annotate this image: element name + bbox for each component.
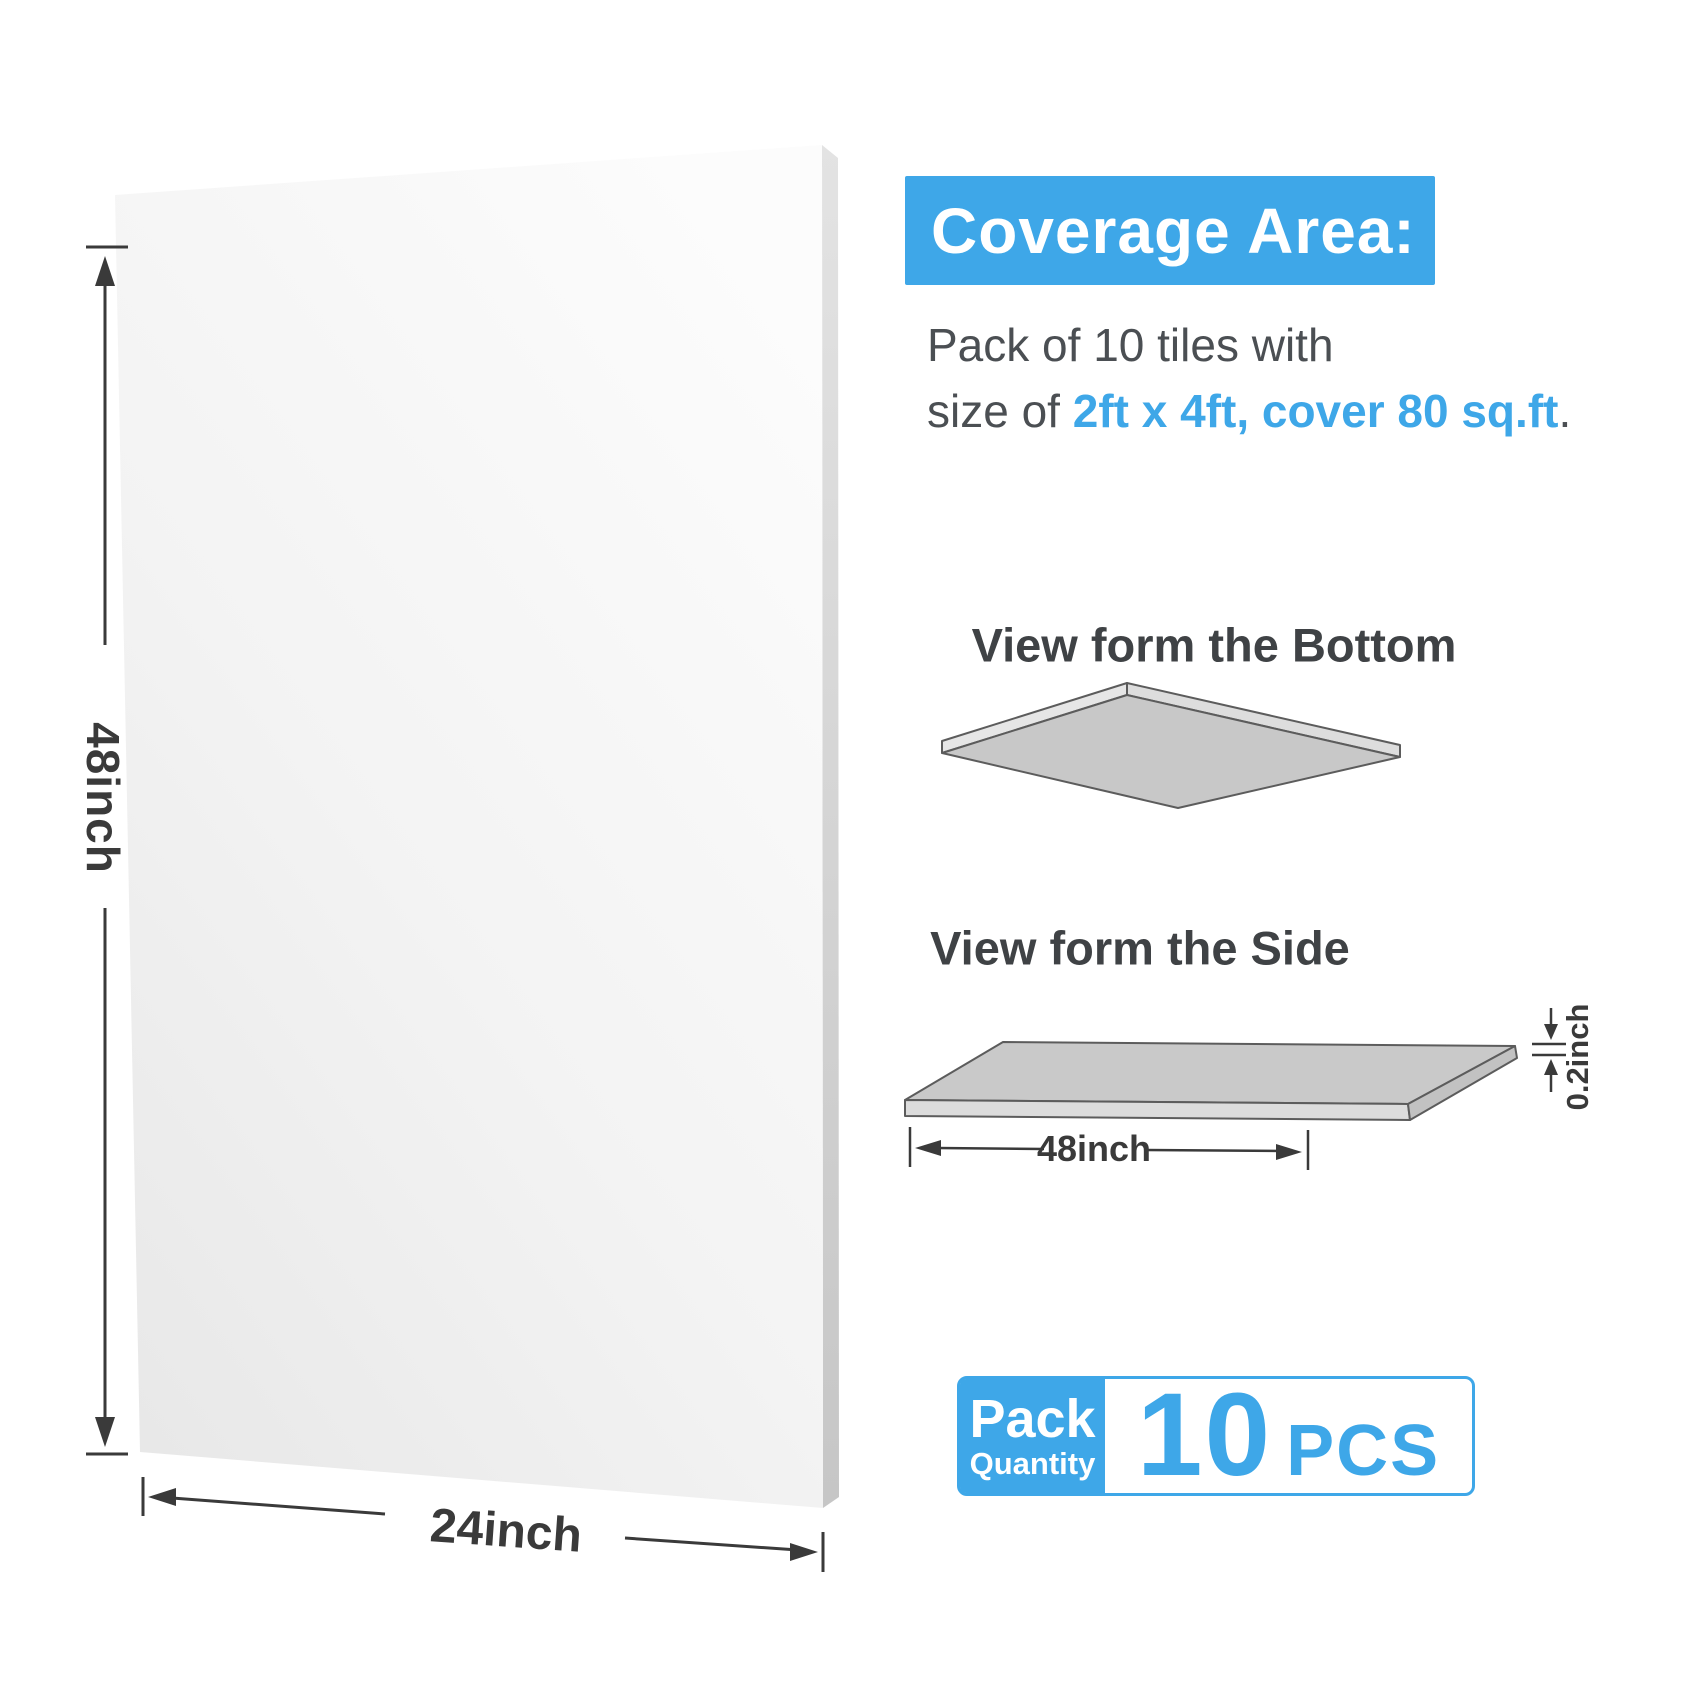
pack-quantity-label: Pack Quantity — [960, 1379, 1105, 1493]
coverage-line2: size of 2ft x 4ft, cover 80 sq.ft. — [927, 378, 1567, 444]
pack-count: 10 — [1137, 1379, 1272, 1491]
pack-unit: PCS — [1286, 1410, 1440, 1492]
side-view-width-label: 48inch — [1037, 1128, 1151, 1170]
tile-side-edge — [822, 145, 839, 1508]
side-view-front-edge — [905, 1100, 1410, 1120]
coverage-line2-prefix: size of — [927, 385, 1073, 437]
ceiling-tile-panel — [115, 145, 839, 1508]
coverage-line1: Pack of 10 tiles with — [927, 312, 1567, 378]
bottom-view-sheet — [942, 683, 1400, 808]
side-view-thickness-label: 0.2inch — [1560, 1004, 1596, 1111]
pack-quantity-badge: Pack Quantity 10 PCS — [957, 1376, 1475, 1496]
panel-height-label: 48inch — [76, 722, 130, 874]
panel-width-label: 24inch — [428, 1498, 584, 1563]
pack-label-top: Pack — [969, 1391, 1095, 1447]
coverage-area-banner: Coverage Area: — [905, 176, 1435, 285]
pack-label-bottom: Quantity — [970, 1447, 1096, 1481]
product-infographic: 48inch 24inch 48inch 0.2inch Coverage Ar… — [0, 0, 1700, 1700]
coverage-description: Pack of 10 tiles with size of 2ft x 4ft,… — [927, 312, 1567, 444]
bottom-view-face — [942, 695, 1400, 808]
pack-quantity-value: 10 PCS — [1105, 1379, 1472, 1493]
bottom-view-title: View form the Bottom — [972, 618, 1457, 673]
side-view-sheet — [905, 1042, 1517, 1120]
coverage-area-title: Coverage Area: — [905, 194, 1416, 268]
coverage-line2-suffix: . — [1558, 385, 1571, 437]
tile-front-face — [115, 145, 823, 1508]
coverage-line2-highlight: 2ft x 4ft, cover 80 sq.ft — [1073, 385, 1559, 437]
side-view-title: View form the Side — [930, 921, 1350, 976]
